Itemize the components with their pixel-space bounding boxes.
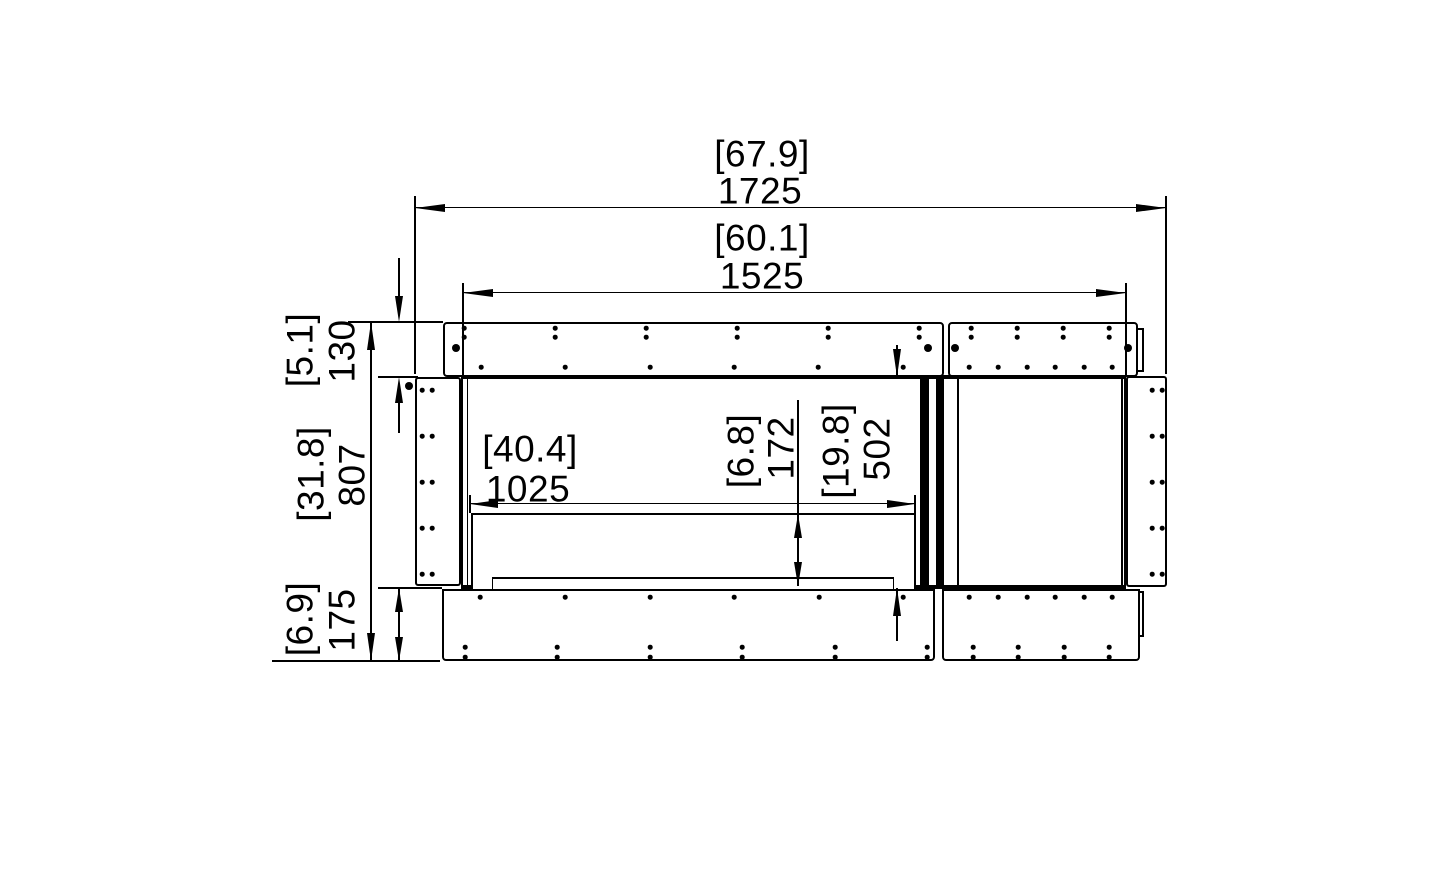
screw-hole-dot (405, 382, 413, 390)
screw-hole-dot (648, 365, 653, 370)
screw-hole-dot (1107, 645, 1112, 650)
glass-divider-bar-2 (936, 379, 944, 586)
screw-hole-dot (553, 326, 558, 331)
screw-hole-dot (925, 655, 930, 660)
screw-hole-dot (1016, 655, 1021, 660)
screw-hole-dot (644, 326, 649, 331)
arrowhead (395, 377, 403, 403)
glass-divider-bar-1 (920, 379, 929, 586)
screw-hole-dot (826, 326, 831, 331)
screw-hole-dot (1061, 326, 1066, 331)
arrowhead (794, 562, 802, 586)
overall-width-mm-label: 1725 (718, 173, 802, 210)
screw-hole-dot (463, 645, 468, 650)
screw-hole-dot (1160, 480, 1165, 485)
fascia-width-inches-label: [60.1] (714, 220, 810, 257)
arrowhead (1136, 204, 1166, 212)
bottom-flange-left (442, 589, 935, 661)
screw-hole-dot (1150, 526, 1155, 531)
screw-hole-dot (1160, 388, 1165, 393)
screw-hole-dot (1150, 388, 1155, 393)
screw-hole-dot (1150, 572, 1155, 577)
screw-hole-dot (967, 595, 972, 600)
screw-hole-dot (1150, 434, 1155, 439)
screw-hole-dot (816, 365, 821, 370)
extension-line-overall-width-left (414, 196, 415, 374)
screw-hole-dot (817, 595, 822, 600)
arrowhead (463, 289, 493, 297)
screw-hole-dot (1082, 595, 1087, 600)
screw-hole-dot (1160, 526, 1165, 531)
extension-line-overall-width-right (1165, 196, 1166, 374)
screw-hole-dot (563, 595, 568, 600)
screw-hole-dot (648, 645, 653, 650)
overall-height-inches-label: [31.8] (293, 426, 330, 522)
screw-hole-dot (735, 326, 740, 331)
screw-hole-dot (1025, 595, 1030, 600)
screw-hole-dot (563, 365, 568, 370)
burner-width-inches-label: [40.4] (482, 431, 578, 468)
screw-hole-dot (1160, 434, 1165, 439)
overall-height-mm-label: 807 (334, 443, 371, 506)
screw-hole-dot (430, 526, 435, 531)
screw-hole-dot (740, 645, 745, 650)
screw-hole-dot (555, 655, 560, 660)
screw-hole-dot (969, 335, 974, 340)
arrowhead (887, 500, 915, 508)
screw-hole-dot (1061, 335, 1066, 340)
screw-hole-dot (648, 655, 653, 660)
screw-hole-dot (925, 645, 930, 650)
extension-line-body-bottom (378, 587, 442, 588)
screw-hole-dot (1082, 365, 1087, 370)
arrowhead (395, 637, 403, 661)
screw-hole-dot (430, 388, 435, 393)
screw-hole-dot (1062, 655, 1067, 660)
dim-line-flange-height-lower (398, 403, 399, 433)
screw-hole-dot (1107, 335, 1112, 340)
fascia-width-mm-label: 1525 (720, 258, 804, 295)
burner-width-mm-label: 1025 (486, 471, 570, 508)
screw-hole-dot (1150, 480, 1155, 485)
screw-hole-dot (1107, 326, 1112, 331)
screw-hole-dot (917, 335, 922, 340)
screw-hole-dot (1025, 365, 1030, 370)
screw-hole-dot (971, 655, 976, 660)
screw-hole-dot (740, 655, 745, 660)
arrowhead (395, 588, 403, 612)
extension-line-base-bottom (272, 660, 440, 661)
screw-hole-dot (430, 572, 435, 577)
bottom-flange-right (942, 589, 1140, 661)
screw-hole-dot (420, 526, 425, 531)
screw-hole-dot (420, 480, 425, 485)
screw-hole-dot (1110, 365, 1115, 370)
screw-hole-dot (420, 388, 425, 393)
screw-hole-dot (1124, 344, 1132, 352)
screw-hole-dot (644, 335, 649, 340)
technical-drawing: [67.9] 1725 [60.1] 1525 [5.1] 130 [31.8]… (0, 0, 1445, 893)
screw-hole-dot (462, 326, 467, 331)
arrowhead (1096, 289, 1126, 297)
screw-hole-dot (1160, 572, 1165, 577)
screw-hole-dot (1053, 365, 1058, 370)
screw-hole-dot (901, 365, 906, 370)
screw-hole-dot (420, 434, 425, 439)
arrowhead (893, 588, 901, 616)
screw-hole-dot (735, 335, 740, 340)
top-flange-left (443, 322, 944, 377)
screw-hole-dot (901, 595, 906, 600)
body-inner-left-line (467, 379, 469, 585)
screw-hole-dot (917, 326, 922, 331)
screw-hole-dot (462, 335, 467, 340)
extension-line-fascia-width-right (1125, 283, 1126, 376)
screw-hole-dot (555, 645, 560, 650)
screw-hole-dot (430, 434, 435, 439)
screw-hole-dot (430, 480, 435, 485)
screw-hole-dot (1015, 335, 1020, 340)
right-compartment (957, 377, 1123, 587)
screw-hole-dot (1053, 595, 1058, 600)
screw-hole-dot (969, 326, 974, 331)
arrowhead (794, 514, 802, 538)
flange-height-inches-label: [5.1] (282, 313, 319, 388)
screw-hole-dot (463, 655, 468, 660)
opening-height-inches-label: [19.8] (818, 403, 855, 499)
burner-strip (492, 577, 894, 589)
screw-hole-dot (1062, 645, 1067, 650)
screw-hole-dot (1015, 326, 1020, 331)
screw-hole-dot (996, 365, 1001, 370)
dim-line-flange-height-upper (398, 258, 399, 296)
screw-hole-dot (1016, 645, 1021, 650)
arrowhead (893, 349, 901, 377)
screw-hole-dot (479, 365, 484, 370)
screw-hole-dot (420, 572, 425, 577)
screw-hole-dot (833, 655, 838, 660)
opening-height-mm-label: 502 (859, 417, 896, 480)
screw-hole-dot (924, 344, 932, 352)
screw-hole-dot (833, 645, 838, 650)
screw-hole-dot (648, 595, 653, 600)
arrowhead (367, 633, 375, 661)
screw-hole-dot (553, 335, 558, 340)
screw-hole-dot (1110, 595, 1115, 600)
burner-inset-mm-label: 172 (763, 416, 800, 479)
arrowhead (415, 204, 445, 212)
arrowhead (367, 322, 375, 350)
base-height-inches-label: [6.9] (282, 582, 319, 657)
screw-hole-dot (967, 365, 972, 370)
arrowhead (395, 296, 403, 322)
screw-hole-dot (452, 344, 460, 352)
screw-hole-dot (951, 344, 959, 352)
screw-hole-dot (971, 645, 976, 650)
burner-inset-inches-label: [6.8] (723, 414, 760, 489)
screw-hole-dot (478, 595, 483, 600)
screw-hole-dot (732, 595, 737, 600)
overall-width-inches-label: [67.9] (714, 136, 810, 173)
screw-hole-dot (732, 365, 737, 370)
screw-hole-dot (1107, 655, 1112, 660)
flange-height-mm-label: 130 (324, 319, 361, 382)
base-height-mm-label: 175 (324, 588, 361, 651)
screw-hole-dot (996, 595, 1001, 600)
screw-hole-dot (826, 335, 831, 340)
